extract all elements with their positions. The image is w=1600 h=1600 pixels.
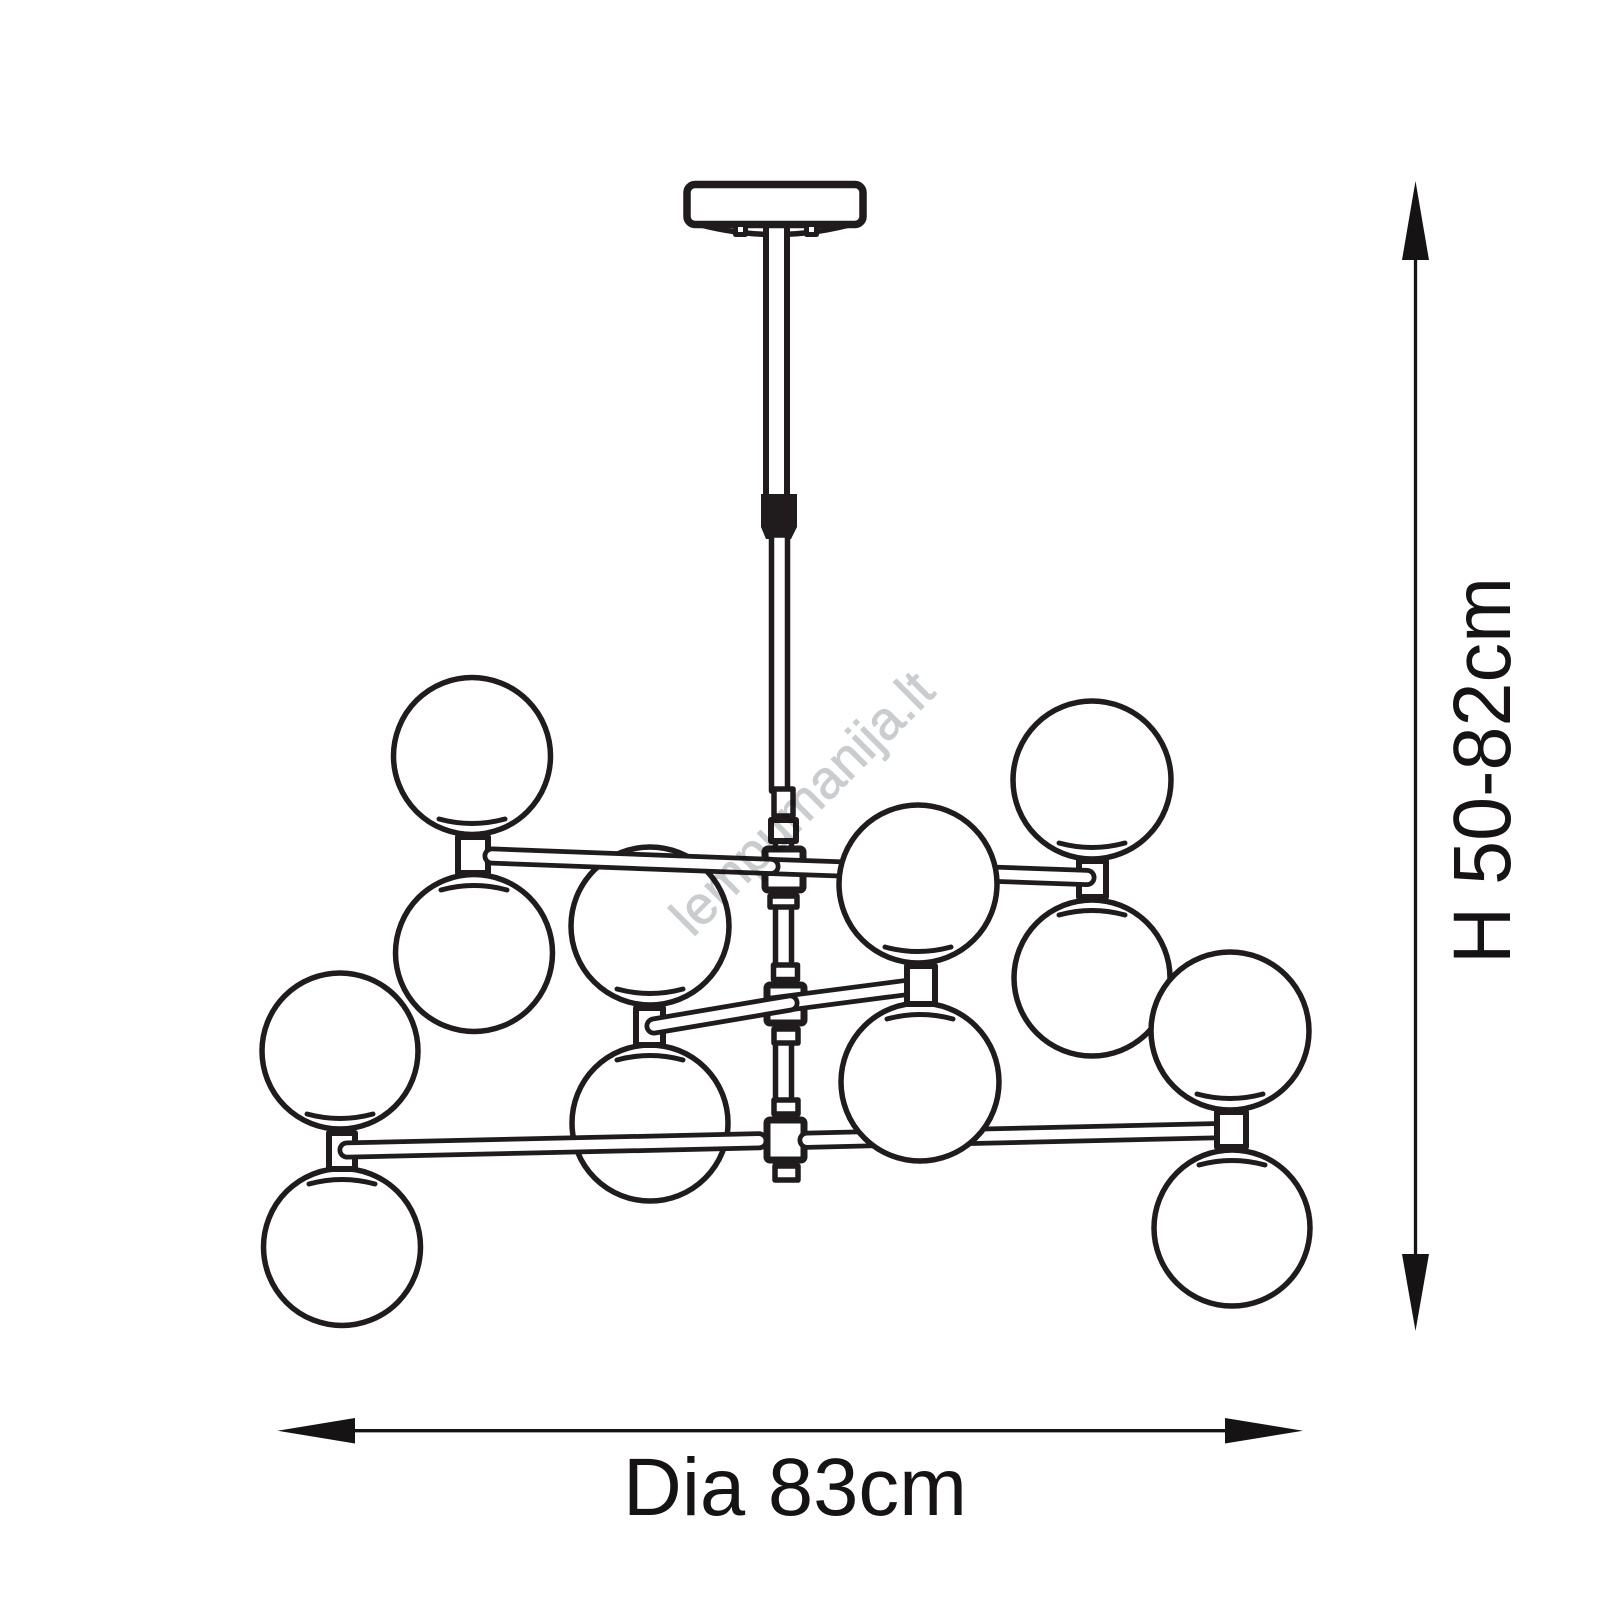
svg-text:Dia 83cm: Dia 83cm [623,1442,967,1533]
svg-text:H 50-82cm: H 50-82cm [1437,577,1528,964]
